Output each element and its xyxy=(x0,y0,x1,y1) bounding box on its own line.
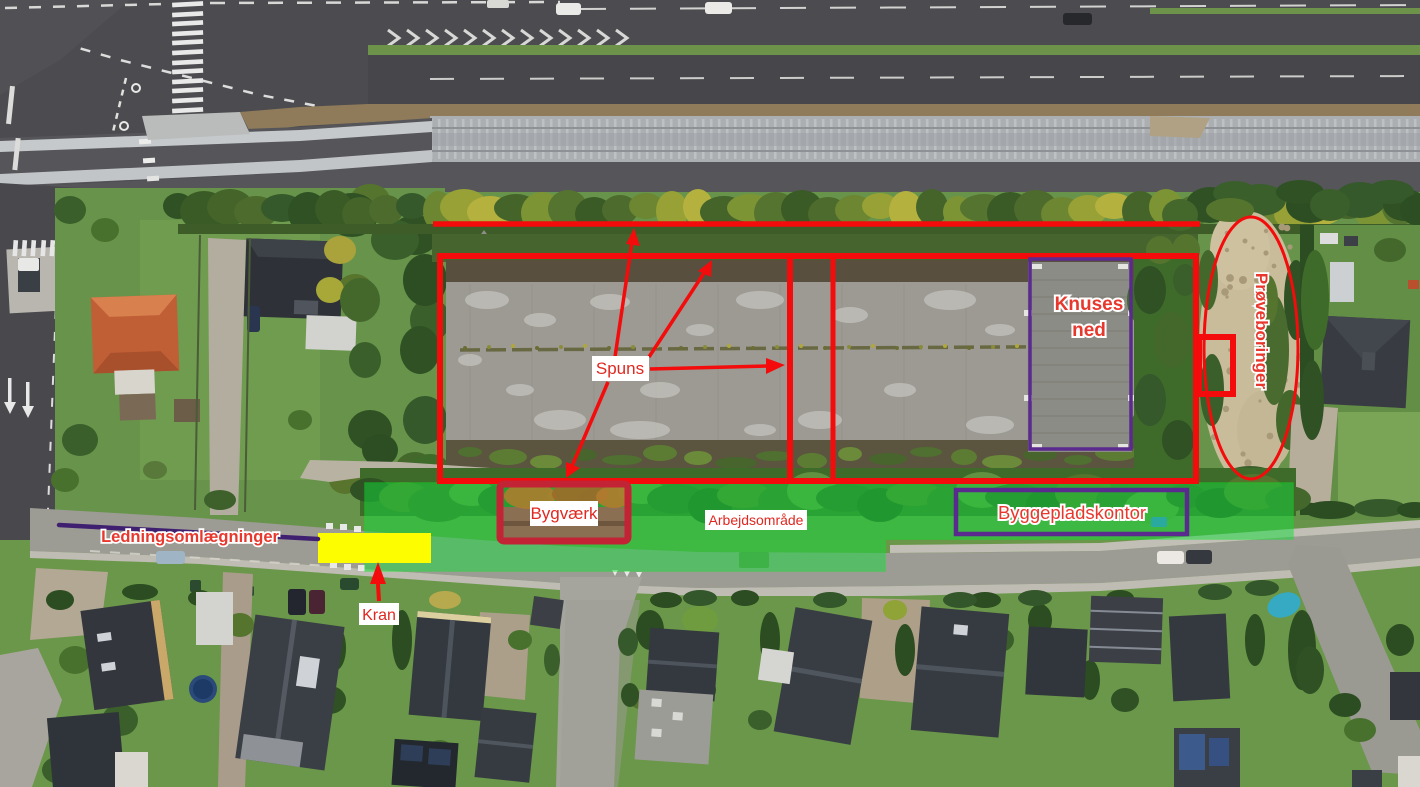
svg-text:Kran: Kran xyxy=(362,607,396,624)
svg-text:Byggepladskontor: Byggepladskontor xyxy=(998,502,1146,523)
svg-text:Ledningsomlægninger: Ledningsomlægninger xyxy=(101,528,279,546)
svg-text:Arbejdsområde: Arbejdsområde xyxy=(709,512,804,528)
svg-text:ned: ned xyxy=(1072,320,1106,341)
svg-text:Prøveboringer: Prøveboringer xyxy=(1252,273,1271,390)
svg-text:Bygværk: Bygværk xyxy=(530,504,598,523)
svg-text:Knuses: Knuses xyxy=(1055,294,1124,315)
svg-text:Spuns: Spuns xyxy=(596,359,644,378)
